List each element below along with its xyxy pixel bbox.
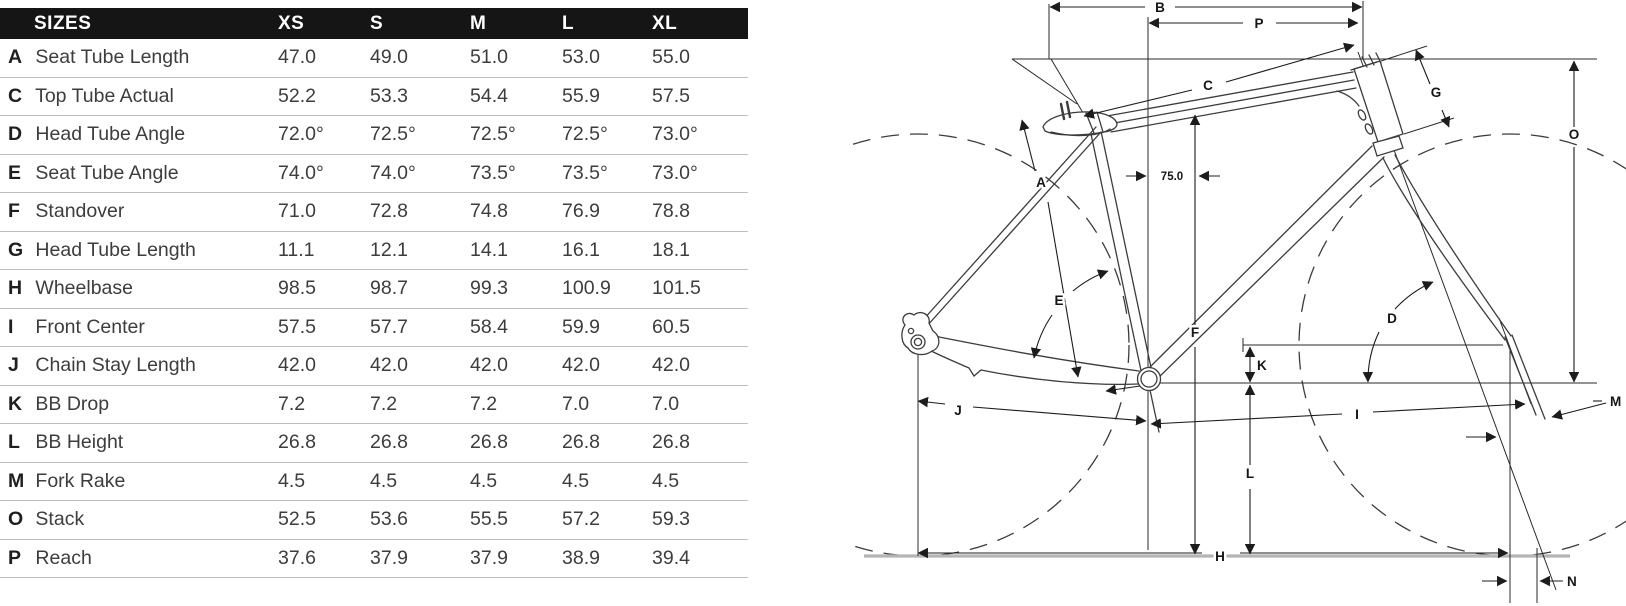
value-xs: 74.0°: [278, 162, 370, 185]
table-row: I Front Center 57.5 57.7 58.4 59.9 60.5: [0, 309, 748, 348]
head-tube: [1354, 61, 1403, 142]
row-label: Head Tube Angle: [35, 123, 185, 145]
dim-i: [1151, 404, 1525, 424]
dim-a: [1022, 120, 1078, 377]
value-s: 7.2: [370, 393, 470, 416]
column-header-m: M: [470, 13, 562, 35]
value-s: 42.0: [370, 354, 470, 377]
table-row: K BB Drop 7.2 7.2 7.2 7.0 7.0: [0, 386, 748, 425]
label-d: D: [1387, 311, 1397, 326]
seat-tube: [1091, 134, 1143, 380]
value-l: 76.9: [562, 200, 652, 223]
value-xl: 7.0: [652, 393, 748, 416]
row-letter: G: [8, 239, 30, 262]
value-xl: 39.4: [652, 547, 748, 570]
value-xl: 55.0: [652, 46, 748, 69]
value-l: 100.9: [562, 277, 652, 300]
table-row: O Stack 52.5 53.6 55.5 57.2 59.3: [0, 501, 748, 540]
value-l: 42.0: [562, 354, 652, 377]
value-xs: 52.5: [278, 508, 370, 531]
value-s: 12.1: [370, 239, 470, 262]
row-letter: J: [8, 354, 30, 377]
value-l: 16.1: [562, 239, 652, 262]
value-xs: 11.1: [278, 239, 370, 262]
table-row: G Head Tube Length 11.1 12.1 14.1 16.1 1…: [0, 232, 748, 271]
value-m: 37.9: [470, 547, 562, 570]
fork-blade: [1383, 158, 1505, 340]
value-m: 42.0: [470, 354, 562, 377]
label-i: I: [1355, 407, 1359, 422]
value-s: 49.0: [370, 46, 470, 69]
value-l: 4.5: [562, 470, 652, 493]
value-m: 4.5: [470, 470, 562, 493]
table-title: SIZES: [0, 13, 278, 35]
table-body: A Seat Tube Length 47.0 49.0 51.0 53.0 5…: [0, 39, 748, 578]
label-l: L: [1246, 466, 1254, 481]
value-l: 59.9: [562, 316, 652, 339]
row-label: Chain Stay Length: [35, 354, 195, 376]
row-label: BB Height: [35, 431, 123, 453]
row-label: Top Tube Actual: [35, 85, 174, 107]
row-label: Seat Tube Angle: [35, 162, 178, 184]
value-xs: 37.6: [278, 547, 370, 570]
table-row: P Reach 37.6 37.9 37.9 38.9 39.4: [0, 540, 748, 579]
row-label: BB Drop: [35, 393, 109, 415]
row-letter: I: [8, 316, 30, 339]
table-row: L BB Height 26.8 26.8 26.8 26.8 26.8: [0, 424, 748, 463]
label-a: A: [1036, 175, 1046, 190]
row-letter: F: [8, 200, 30, 223]
value-xs: 4.5: [278, 470, 370, 493]
label-p: P: [1254, 16, 1263, 31]
table-row: C Top Tube Actual 52.2 53.3 54.4 55.9 57…: [0, 78, 748, 117]
value-xs: 98.5: [278, 277, 370, 300]
value-s: 98.7: [370, 277, 470, 300]
value-m: 51.0: [470, 46, 562, 69]
value-l: 57.2: [562, 508, 652, 531]
value-xs: 52.2: [278, 85, 370, 108]
value-xl: 78.8: [652, 200, 748, 223]
value-s: 74.0°: [370, 162, 470, 185]
value-s: 37.9: [370, 547, 470, 570]
column-header-s: S: [370, 13, 470, 35]
value-s: 53.3: [370, 85, 470, 108]
row-letter: C: [8, 85, 30, 108]
value-xl: 73.0°: [652, 162, 748, 185]
table-row: D Head Tube Angle 72.0° 72.5° 72.5° 72.5…: [0, 116, 748, 155]
table-row: H Wheelbase 98.5 98.7 99.3 100.9 101.5: [0, 270, 748, 309]
value-xl: 57.5: [652, 85, 748, 108]
value-xl: 4.5: [652, 470, 748, 493]
seat-stay: [914, 127, 1096, 330]
label-b: B: [1155, 0, 1165, 15]
value-s: 26.8: [370, 431, 470, 454]
bike-geometry-diagram: B P C A 75.0 E F G O D K L M I J H N: [850, 0, 1626, 606]
table-row: M Fork Rake 4.5 4.5 4.5 4.5 4.5: [0, 463, 748, 502]
value-xl: 26.8: [652, 431, 748, 454]
row-letter: M: [8, 470, 30, 493]
label-o: O: [1569, 127, 1580, 142]
label-h: H: [1215, 549, 1225, 564]
value-l: 26.8: [562, 431, 652, 454]
row-label: Fork Rake: [35, 470, 125, 492]
reference-lines: [918, 1, 1597, 603]
label-f: F: [1191, 325, 1199, 340]
value-s: 53.6: [370, 508, 470, 531]
value-m: 26.8: [470, 431, 562, 454]
table-row: E Seat Tube Angle 74.0° 74.0° 73.5° 73.5…: [0, 155, 748, 194]
value-xs: 42.0: [278, 354, 370, 377]
dim-d: [1368, 282, 1433, 382]
row-letter: A: [8, 46, 30, 69]
row-label: Reach: [35, 547, 91, 569]
row-letter: D: [8, 123, 30, 146]
label-m: M: [1610, 394, 1621, 409]
table-header-row: SIZES XS S M L XL: [0, 8, 748, 39]
value-xs: 72.0°: [278, 123, 370, 146]
value-xs: 57.5: [278, 316, 370, 339]
row-letter: H: [8, 277, 30, 300]
value-m: 74.8: [470, 200, 562, 223]
value-m: 73.5°: [470, 162, 562, 185]
table-row: F Standover 71.0 72.8 74.8 76.9 78.8: [0, 193, 748, 232]
value-s: 57.7: [370, 316, 470, 339]
value-l: 55.9: [562, 85, 652, 108]
row-label: Stack: [35, 508, 84, 530]
value-m: 72.5°: [470, 123, 562, 146]
label-k: K: [1257, 358, 1267, 373]
value-xl: 42.0: [652, 354, 748, 377]
cable-port: [1357, 109, 1367, 122]
value-xl: 73.0°: [652, 123, 748, 146]
label-g: G: [1431, 85, 1442, 100]
value-m: 14.1: [470, 239, 562, 262]
value-l: 38.9: [562, 547, 652, 570]
row-letter: O: [8, 508, 30, 531]
top-tube: [1107, 72, 1353, 116]
column-header-l: L: [562, 13, 652, 35]
value-xs: 7.2: [278, 393, 370, 416]
column-header-xl: XL: [652, 13, 748, 35]
value-l: 72.5°: [562, 123, 652, 146]
dim-c: [1084, 45, 1354, 116]
value-m: 55.5: [470, 508, 562, 531]
value-l: 73.5°: [562, 162, 652, 185]
row-label: Wheelbase: [35, 277, 133, 299]
row-letter: E: [8, 162, 30, 185]
label-n: N: [1567, 574, 1577, 589]
label-c: C: [1203, 78, 1213, 93]
dimension-lines: [918, 7, 1606, 581]
table-row: J Chain Stay Length 42.0 42.0 42.0 42.0 …: [0, 347, 748, 386]
row-letter: K: [8, 393, 30, 416]
label-setback: 75.0: [1161, 171, 1183, 183]
frame-drawing: [902, 53, 1545, 432]
row-letter: P: [8, 547, 30, 570]
table-row: A Seat Tube Length 47.0 49.0 51.0 53.0 5…: [0, 39, 748, 78]
row-label: Head Tube Length: [35, 239, 195, 261]
row-letter: L: [8, 431, 30, 454]
value-m: 99.3: [470, 277, 562, 300]
value-xl: 60.5: [652, 316, 748, 339]
label-e: E: [1054, 293, 1063, 308]
rear-wheel-circle: [850, 134, 1129, 556]
value-s: 4.5: [370, 470, 470, 493]
row-label: Standover: [35, 200, 124, 222]
value-s: 72.8: [370, 200, 470, 223]
value-xs: 26.8: [278, 431, 370, 454]
value-m: 54.4: [470, 85, 562, 108]
label-j: J: [954, 403, 962, 418]
row-label: Front Center: [35, 316, 144, 338]
geometry-sheet: SIZES XS S M L XL A Seat Tube Length 47.…: [0, 0, 1626, 606]
value-s: 72.5°: [370, 123, 470, 146]
row-label: Seat Tube Length: [35, 46, 189, 68]
value-xl: 59.3: [652, 508, 748, 531]
value-m: 58.4: [470, 316, 562, 339]
column-header-xs: XS: [278, 13, 370, 35]
value-xs: 47.0: [278, 46, 370, 69]
value-xl: 101.5: [652, 277, 748, 300]
value-l: 7.0: [562, 393, 652, 416]
value-m: 7.2: [470, 393, 562, 416]
value-xl: 18.1: [652, 239, 748, 262]
geometry-table: SIZES XS S M L XL A Seat Tube Length 47.…: [0, 8, 748, 578]
value-xs: 71.0: [278, 200, 370, 223]
value-l: 53.0: [562, 46, 652, 69]
dim-j: [918, 401, 1146, 421]
